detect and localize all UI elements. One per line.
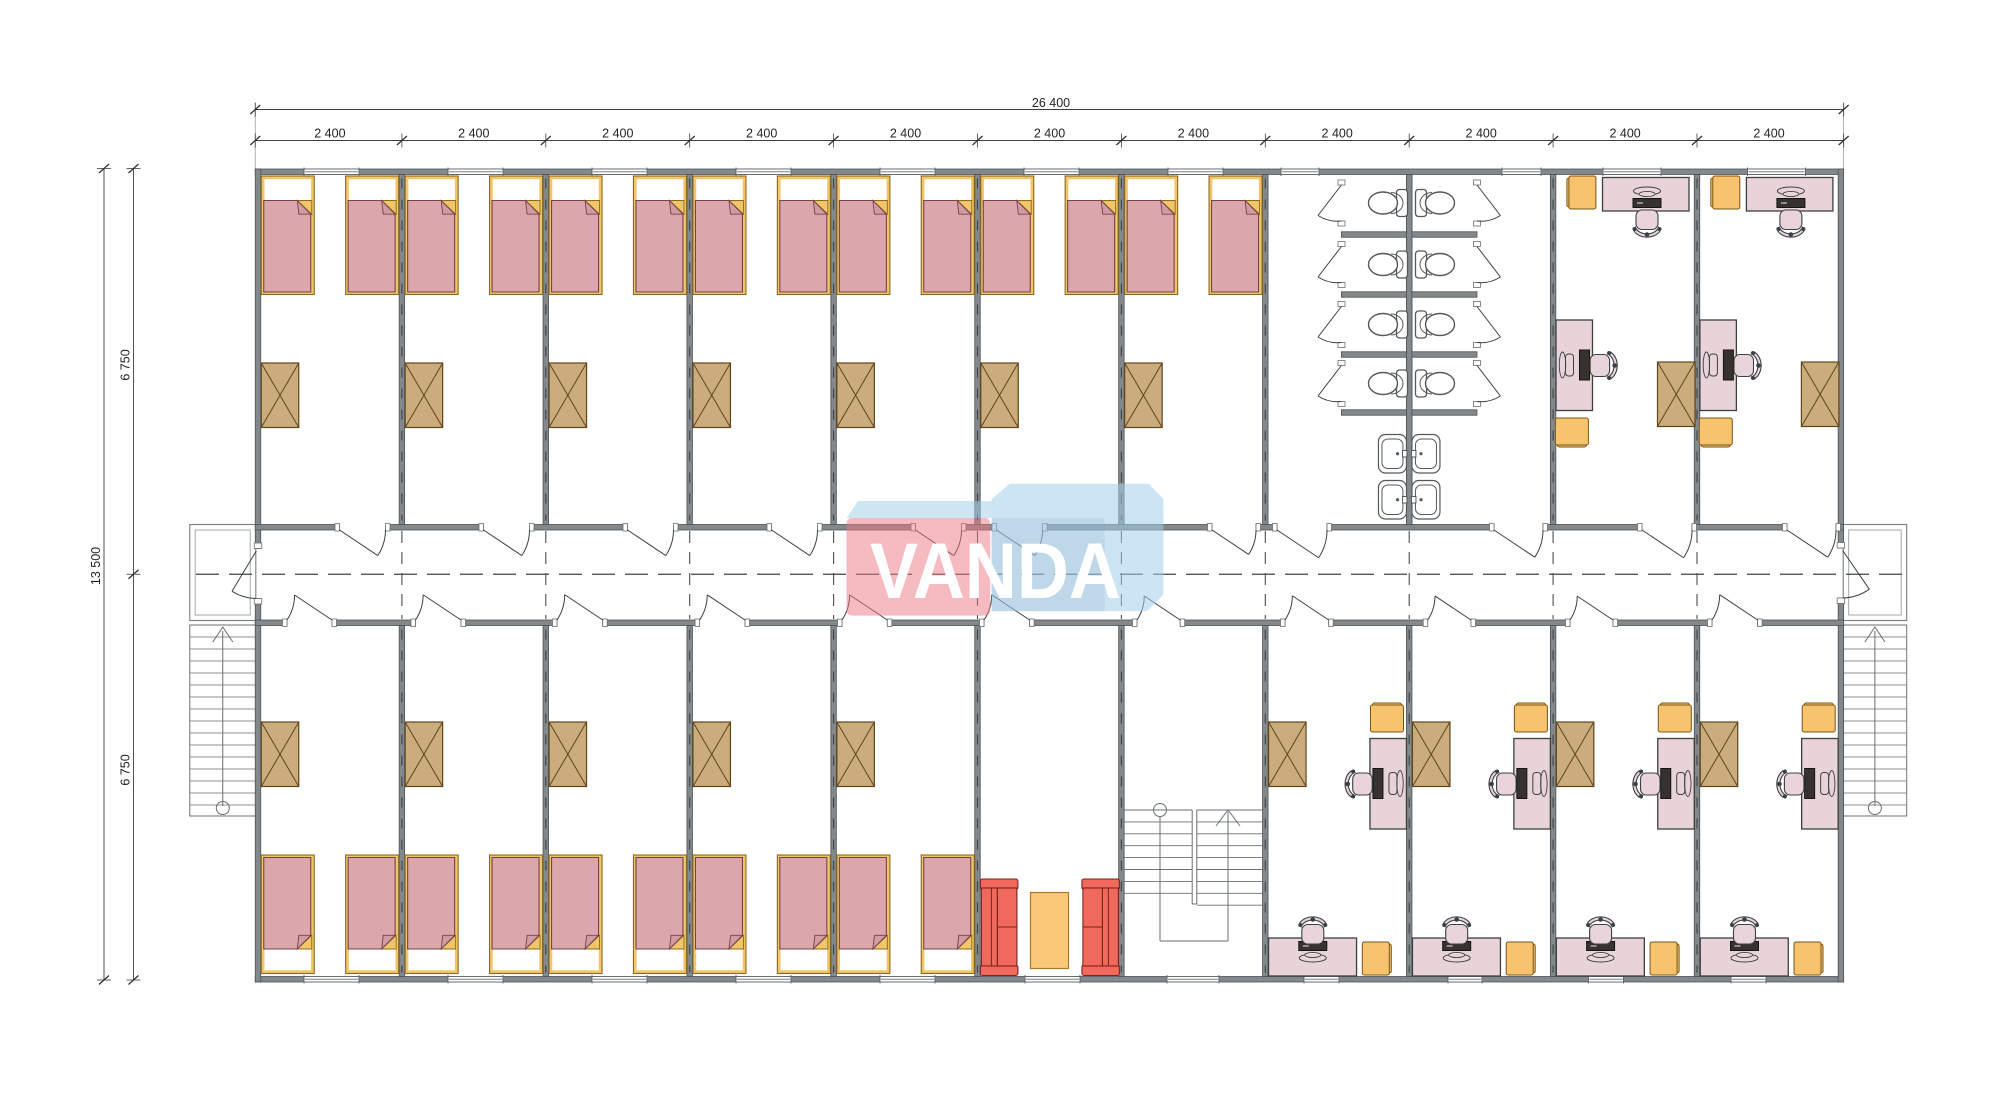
svg-text:2 400: 2 400 [1178,127,1209,141]
svg-text:2 400: 2 400 [1322,127,1353,141]
svg-text:VANDA: VANDA [870,527,1121,615]
svg-text:2 400: 2 400 [314,127,345,141]
svg-text:2 400: 2 400 [602,127,633,141]
svg-text:2 400: 2 400 [1034,127,1065,141]
svg-text:2 400: 2 400 [1753,127,1784,141]
svg-text:6 750: 6 750 [119,754,133,785]
svg-text:2 400: 2 400 [1609,127,1640,141]
svg-text:2 400: 2 400 [746,127,777,141]
svg-text:2 400: 2 400 [890,127,921,141]
svg-text:2 400: 2 400 [458,127,489,141]
svg-text:2 400: 2 400 [1466,127,1497,141]
svg-text:26 400: 26 400 [1032,96,1070,110]
svg-text:6 750: 6 750 [119,349,133,380]
svg-text:13 500: 13 500 [89,547,103,585]
